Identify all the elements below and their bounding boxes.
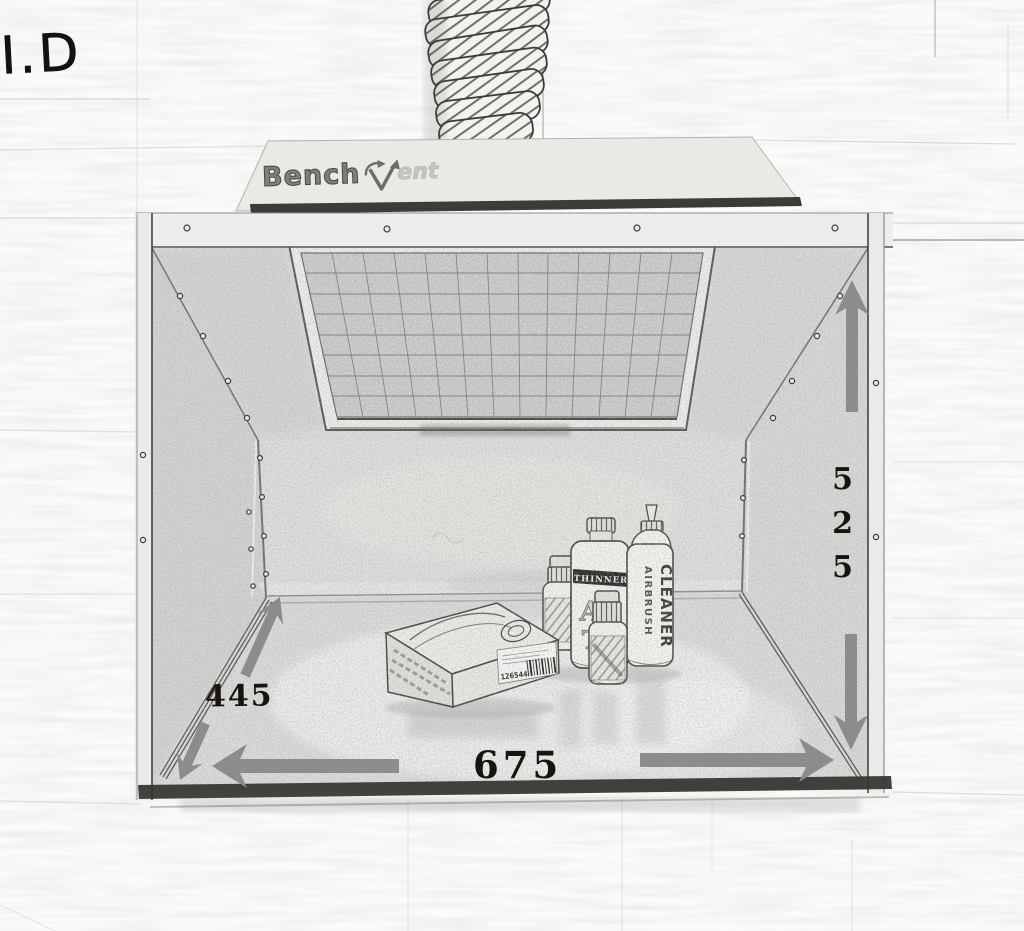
logo-text-ent: ent [397,158,439,184]
depth-dimension-label: 445 [205,678,274,714]
sketch-canvas: THINNER AC TI AIRBRUSH CLEANER [0,0,1024,931]
height-dimension-label: 525 [827,462,857,594]
benchvent-logo: Bench ent [261,154,439,194]
frame-right-stile [868,213,884,793]
vent-arrow-icon [362,158,403,193]
frame-top-rail [135,213,893,247]
width-dimension-label: 675 [473,743,562,787]
frame-left-stile [135,213,152,800]
spray-booth-dimension-sketch: THINNER AC TI AIRBRUSH CLEANER [0,0,1024,931]
logo-text-bench: Bench [262,158,361,192]
